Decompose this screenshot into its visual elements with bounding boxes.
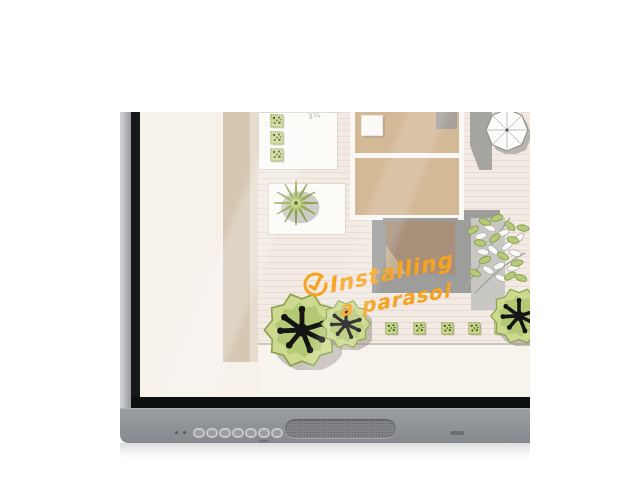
square-hedge-icon [468,322,482,336]
control-button-5[interactable] [245,428,257,438]
display-frame-left [120,112,131,408]
garden-wall-band [223,112,250,362]
starburst-plant-icon [272,179,320,227]
control-button-2[interactable] [206,428,218,438]
square-hedge-icon [270,148,285,163]
house-room-lower [355,158,459,215]
house-furniture-square [361,115,383,136]
control-button-3[interactable] [219,428,231,438]
leafy-branches [455,208,530,298]
garden-wall-band-edge [250,112,258,362]
parasol-icon [483,112,530,154]
status-led [175,431,178,434]
device-reflection [120,443,530,460]
square-hedge-icon [270,131,285,146]
control-button-1[interactable] [193,428,205,438]
display-chin [120,408,530,443]
display-inner-bezel-bottom [131,397,530,408]
touchscreen[interactable]: 3¼ [140,112,530,397]
square-hedge-icon [441,322,455,336]
control-button-7[interactable] [271,428,283,438]
square-hedge-icon [270,114,285,129]
tree-canopy-icon [489,286,530,346]
square-hedge-icon [385,322,399,336]
control-button-4[interactable] [232,428,244,438]
ir-sensor-window [450,431,464,435]
ambient-sensor-dot [183,431,186,434]
product-photo-canvas: 3¼ [0,0,640,480]
square-hedge-icon [413,322,427,336]
control-button-6[interactable] [258,428,270,438]
display-inner-bezel-left [131,112,140,408]
interactive-display: 3¼ [120,112,530,443]
speaker-grille [285,419,396,438]
power-marker [259,440,268,442]
house-annex-square [436,112,457,129]
